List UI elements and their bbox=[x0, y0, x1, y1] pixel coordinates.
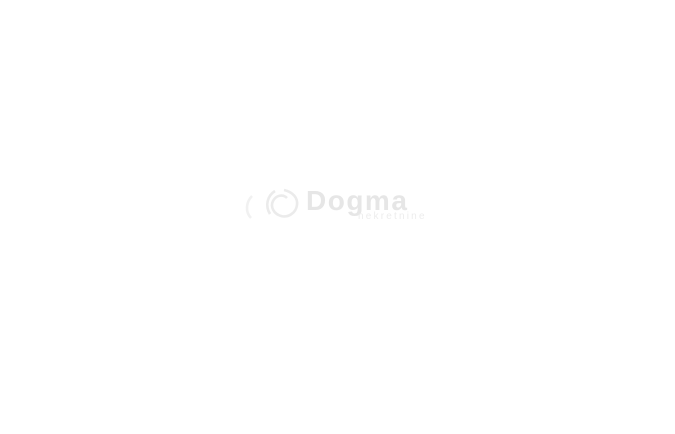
svg-text:nekretnine: nekretnine bbox=[358, 211, 427, 222]
